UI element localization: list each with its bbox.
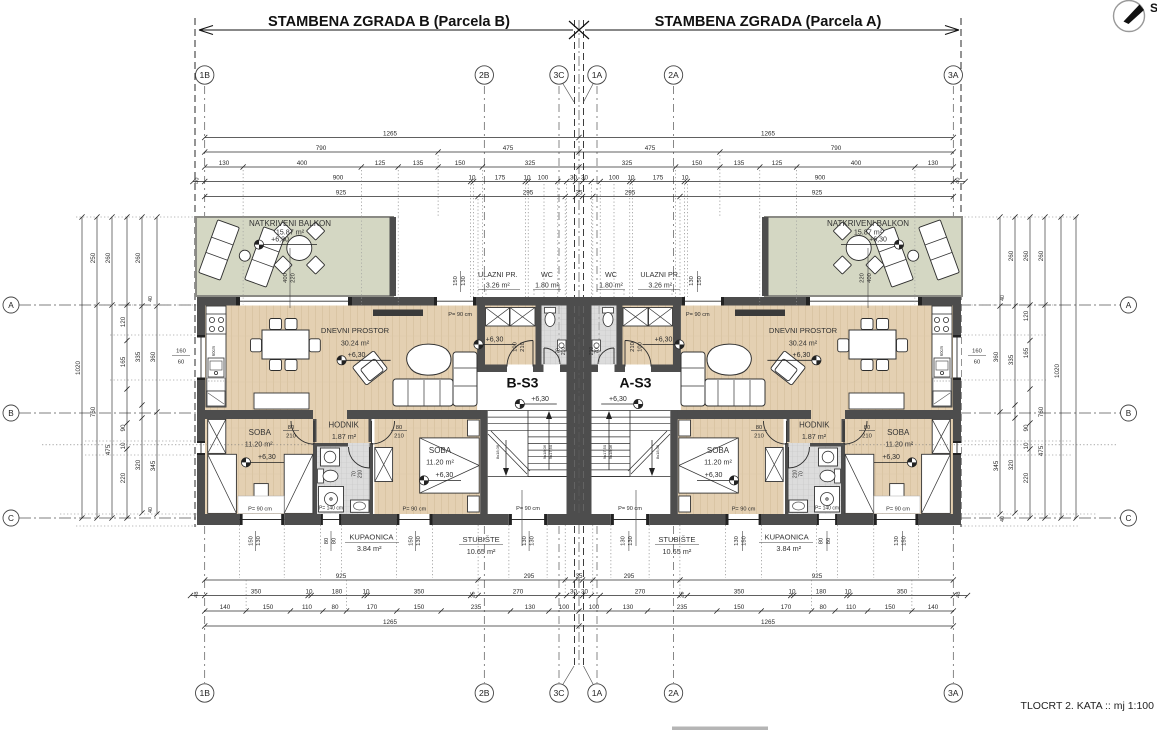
svg-text:130: 130 <box>623 604 634 611</box>
svg-text:325: 325 <box>622 160 633 167</box>
svg-text:P= 140 cm: P= 140 cm <box>815 506 839 512</box>
svg-text:235: 235 <box>471 604 482 611</box>
svg-text:TLOCRT 2. KATA :: mj 1:100: TLOCRT 2. KATA :: mj 1:100 <box>1021 700 1155 712</box>
svg-text:48: 48 <box>194 592 200 598</box>
svg-text:220: 220 <box>120 472 127 483</box>
svg-text:210: 210 <box>793 470 799 479</box>
svg-text:130: 130 <box>416 536 422 546</box>
svg-text:9x17,50: 9x17,50 <box>602 444 607 459</box>
svg-text:STAMBENA ZGRADA B (Parcela B): STAMBENA ZGRADA B (Parcela B) <box>268 14 510 30</box>
svg-text:11.20 m²: 11.20 m² <box>426 458 454 467</box>
svg-text:475: 475 <box>105 444 112 455</box>
svg-text:130: 130 <box>461 276 467 286</box>
svg-text:350: 350 <box>414 588 425 595</box>
svg-text:210: 210 <box>561 347 567 356</box>
svg-text:P= 90 cm: P= 90 cm <box>886 507 910 513</box>
svg-text:10: 10 <box>1023 442 1030 450</box>
svg-text:WC: WC <box>605 270 617 279</box>
svg-text:3.84 m²: 3.84 m² <box>357 544 382 553</box>
svg-text:100: 100 <box>609 174 620 181</box>
svg-text:350: 350 <box>734 588 745 595</box>
svg-text:9x18,06: 9x18,06 <box>608 444 613 459</box>
svg-text:1A: 1A <box>592 70 603 80</box>
svg-text:SOBA: SOBA <box>707 446 730 455</box>
svg-text:DNEVNI PROSTOR: DNEVNI PROSTOR <box>769 326 838 335</box>
svg-text:30.24 m²: 30.24 m² <box>341 338 370 347</box>
svg-text:150: 150 <box>414 604 425 611</box>
svg-text:B: B <box>1126 409 1132 418</box>
svg-text:130: 130 <box>628 536 634 546</box>
svg-text:1A: 1A <box>592 688 603 698</box>
svg-text:1020: 1020 <box>1054 364 1061 379</box>
svg-text:900: 900 <box>333 174 344 181</box>
svg-text:S: S <box>1150 1 1157 15</box>
svg-text:SOBA: SOBA <box>249 428 272 437</box>
svg-text:10: 10 <box>120 442 127 450</box>
svg-text:150: 150 <box>885 604 896 611</box>
svg-text:1020: 1020 <box>75 361 82 376</box>
svg-text:150: 150 <box>453 276 459 286</box>
svg-text:130: 130 <box>928 160 939 167</box>
svg-text:30: 30 <box>581 174 589 181</box>
svg-text:+6,30: +6,30 <box>531 396 549 403</box>
svg-text:SOBA: SOBA <box>429 446 452 455</box>
svg-text:80: 80 <box>324 538 330 544</box>
svg-text:80: 80 <box>288 425 294 431</box>
svg-text:80: 80 <box>818 538 824 544</box>
svg-text:160: 160 <box>176 349 186 355</box>
svg-text:40: 40 <box>956 178 962 184</box>
svg-text:270: 270 <box>635 588 646 595</box>
svg-text:A: A <box>1126 301 1132 310</box>
svg-text:140: 140 <box>928 604 939 611</box>
svg-text:120: 120 <box>1023 310 1030 321</box>
svg-text:135: 135 <box>413 160 424 167</box>
svg-text:790: 790 <box>831 145 842 152</box>
svg-text:130: 130 <box>219 160 230 167</box>
svg-text:335: 335 <box>1008 354 1015 365</box>
svg-text:100: 100 <box>559 604 570 611</box>
svg-text:15.87 m²: 15.87 m² <box>854 228 883 237</box>
svg-text:320: 320 <box>1008 459 1015 470</box>
svg-text:1.87 m²: 1.87 m² <box>332 432 357 441</box>
svg-text:35: 35 <box>575 189 583 196</box>
svg-text:125: 125 <box>375 160 386 167</box>
svg-text:10: 10 <box>681 174 689 181</box>
svg-text:210: 210 <box>286 434 296 440</box>
svg-text:40: 40 <box>148 296 154 302</box>
svg-text:130: 130 <box>525 604 536 611</box>
svg-text:130: 130 <box>522 536 528 546</box>
svg-text:295: 295 <box>624 573 635 580</box>
svg-text:10: 10 <box>468 174 476 181</box>
svg-text:100: 100 <box>638 342 644 352</box>
svg-text:+6,30: +6,30 <box>486 336 504 343</box>
svg-text:175: 175 <box>495 174 506 181</box>
svg-text:180: 180 <box>816 588 827 595</box>
svg-text:165: 165 <box>1023 347 1030 358</box>
svg-text:1.80 m²: 1.80 m² <box>535 282 559 289</box>
svg-text:9x17,50: 9x17,50 <box>548 444 553 459</box>
svg-text:+6,30: +6,30 <box>348 352 366 359</box>
svg-text:925: 925 <box>812 189 823 196</box>
svg-text:+6,30: +6,30 <box>793 352 811 359</box>
svg-text:1265: 1265 <box>383 619 398 626</box>
svg-text:220: 220 <box>291 273 297 283</box>
svg-text:260: 260 <box>105 252 112 263</box>
svg-text:A-S3: A-S3 <box>620 375 652 391</box>
svg-text:1265: 1265 <box>383 130 398 137</box>
svg-text:130: 130 <box>530 536 536 546</box>
svg-text:170: 170 <box>367 604 378 611</box>
svg-text:345: 345 <box>993 460 1000 471</box>
svg-text:35: 35 <box>575 573 583 580</box>
svg-text:+6,30: +6,30 <box>271 236 289 243</box>
svg-text:80: 80 <box>826 538 832 544</box>
svg-text:+6,30: +6,30 <box>655 336 673 343</box>
svg-text:100: 100 <box>513 342 519 352</box>
svg-text:25: 25 <box>471 592 477 598</box>
svg-text:11.20 m²: 11.20 m² <box>245 440 273 449</box>
svg-text:80: 80 <box>332 538 338 544</box>
svg-text:90: 90 <box>1023 424 1030 432</box>
svg-text:40: 40 <box>1000 295 1006 301</box>
svg-text:WC: WC <box>541 270 553 279</box>
svg-text:100: 100 <box>589 604 600 611</box>
svg-text:210: 210 <box>862 434 872 440</box>
svg-text:30.24 m²: 30.24 m² <box>789 338 818 347</box>
svg-text:STUBIŠTE: STUBIŠTE <box>463 535 500 544</box>
svg-text:1265: 1265 <box>761 619 776 626</box>
svg-text:15.87 m²: 15.87 m² <box>276 228 305 237</box>
svg-text:P= 90 cm: P= 90 cm <box>403 507 427 513</box>
svg-text:3A: 3A <box>948 70 959 80</box>
svg-text:10: 10 <box>523 174 531 181</box>
svg-text:140: 140 <box>220 604 231 611</box>
svg-text:475: 475 <box>1038 445 1045 456</box>
svg-text:175: 175 <box>653 174 664 181</box>
svg-text:260: 260 <box>135 252 142 263</box>
svg-text:2A: 2A <box>668 688 679 698</box>
svg-text:760: 760 <box>1038 406 1045 417</box>
svg-text:P= 90 cm: P= 90 cm <box>732 507 756 513</box>
svg-text:260: 260 <box>1008 250 1015 261</box>
svg-text:350: 350 <box>897 588 908 595</box>
svg-text:B-S3: B-S3 <box>507 375 539 391</box>
svg-text:KUPAONICA: KUPAONICA <box>765 533 810 542</box>
svg-text:8x18,06: 8x18,06 <box>495 444 500 459</box>
svg-text:3.84 m²: 3.84 m² <box>776 544 801 553</box>
svg-text:30: 30 <box>570 588 578 595</box>
svg-text:2A: 2A <box>668 70 679 80</box>
svg-text:10: 10 <box>627 174 635 181</box>
svg-text:170: 170 <box>781 604 792 611</box>
svg-text:10: 10 <box>844 588 852 595</box>
svg-text:3C: 3C <box>554 70 565 80</box>
svg-text:70: 70 <box>595 348 601 354</box>
svg-text:1B: 1B <box>199 688 210 698</box>
svg-text:220: 220 <box>859 273 865 283</box>
svg-text:80: 80 <box>396 425 402 431</box>
svg-text:P= 90 cm: P= 90 cm <box>516 506 540 512</box>
svg-text:360: 360 <box>993 351 1000 362</box>
svg-text:130: 130 <box>689 276 695 286</box>
svg-text:3.26 m²: 3.26 m² <box>486 282 510 289</box>
svg-text:130: 130 <box>734 536 740 546</box>
svg-text:B: B <box>8 409 14 418</box>
svg-text:ULAZNI PR.: ULAZNI PR. <box>640 270 680 279</box>
svg-text:10: 10 <box>305 588 313 595</box>
svg-text:160: 160 <box>972 349 982 355</box>
svg-text:2B: 2B <box>479 70 490 80</box>
svg-text:40: 40 <box>1000 516 1006 522</box>
svg-text:235: 235 <box>677 604 688 611</box>
svg-text:2B: 2B <box>479 688 490 698</box>
svg-text:210: 210 <box>754 434 764 440</box>
svg-text:3A: 3A <box>948 688 959 698</box>
svg-text:320: 320 <box>135 459 142 470</box>
svg-text:1.80 m²: 1.80 m² <box>599 282 623 289</box>
svg-text:80: 80 <box>756 425 762 431</box>
svg-text:150: 150 <box>692 160 703 167</box>
svg-text:+6,30: +6,30 <box>258 454 276 461</box>
svg-text:130: 130 <box>894 536 900 546</box>
svg-text:30: 30 <box>581 588 589 595</box>
svg-text:+6,30: +6,30 <box>436 472 454 479</box>
svg-text:475: 475 <box>645 145 656 152</box>
svg-text:360: 360 <box>150 351 157 362</box>
svg-text:345: 345 <box>150 460 157 471</box>
svg-text:210: 210 <box>630 342 636 352</box>
svg-text:P= 90 cm: P= 90 cm <box>686 312 710 318</box>
svg-text:48: 48 <box>956 592 962 598</box>
svg-text:KUPAONICA: KUPAONICA <box>349 533 394 542</box>
svg-text:110: 110 <box>302 604 313 611</box>
svg-text:P= 90 cm: P= 90 cm <box>248 507 272 513</box>
svg-text:1265: 1265 <box>761 130 776 137</box>
svg-text:125: 125 <box>772 160 783 167</box>
svg-text:80: 80 <box>819 604 827 611</box>
svg-text:P= 140 cm: P= 140 cm <box>319 506 343 512</box>
svg-text:210: 210 <box>589 347 595 356</box>
svg-text:260: 260 <box>1038 250 1045 261</box>
svg-text:180: 180 <box>332 588 343 595</box>
svg-text:STUBIŠTE: STUBIŠTE <box>658 535 695 544</box>
svg-text:295: 295 <box>625 189 636 196</box>
svg-text:150: 150 <box>455 160 466 167</box>
svg-text:150: 150 <box>248 536 254 546</box>
svg-text:+6,30: +6,30 <box>705 472 723 479</box>
svg-text:400: 400 <box>283 273 289 283</box>
svg-text:11.20 m²: 11.20 m² <box>885 440 913 449</box>
svg-text:150: 150 <box>697 276 703 286</box>
svg-text:130: 130 <box>620 536 626 546</box>
svg-text:A: A <box>8 301 14 310</box>
svg-text:10: 10 <box>788 588 796 595</box>
svg-text:10.65 m²: 10.65 m² <box>663 547 692 556</box>
svg-text:25: 25 <box>680 592 686 598</box>
svg-text:+6,30: +6,30 <box>869 236 887 243</box>
svg-text:295: 295 <box>524 573 535 580</box>
svg-text:100: 100 <box>538 174 549 181</box>
svg-text:9x18,06: 9x18,06 <box>542 444 547 459</box>
svg-text:900: 900 <box>815 174 826 181</box>
svg-text:350: 350 <box>251 588 262 595</box>
svg-text:925: 925 <box>812 573 823 580</box>
svg-text:70: 70 <box>799 471 805 477</box>
svg-text:270: 270 <box>513 588 524 595</box>
svg-text:60cm: 60cm <box>939 345 944 356</box>
svg-text:925: 925 <box>336 189 347 196</box>
svg-text:40: 40 <box>148 507 154 513</box>
svg-text:+6,30: +6,30 <box>609 396 627 403</box>
svg-text:40: 40 <box>195 178 201 184</box>
svg-text:150: 150 <box>734 604 745 611</box>
svg-text:150: 150 <box>902 536 908 546</box>
svg-text:475: 475 <box>503 145 514 152</box>
svg-text:110: 110 <box>846 604 857 611</box>
svg-text:335: 335 <box>135 351 142 362</box>
svg-text:210: 210 <box>358 470 364 479</box>
svg-text:325: 325 <box>525 160 536 167</box>
svg-text:3.26 m²: 3.26 m² <box>648 282 672 289</box>
svg-text:90: 90 <box>120 424 127 432</box>
svg-text:STAMBENA ZGRADA (Parcela A): STAMBENA ZGRADA (Parcela A) <box>655 14 882 30</box>
svg-text:165: 165 <box>120 356 127 367</box>
svg-text:8x18,06: 8x18,06 <box>655 444 660 459</box>
svg-text:120: 120 <box>120 316 127 327</box>
svg-text:400: 400 <box>297 160 308 167</box>
svg-text:C: C <box>1126 514 1132 523</box>
svg-text:400: 400 <box>851 160 862 167</box>
svg-text:1.87 m²: 1.87 m² <box>802 432 827 441</box>
svg-text:135: 135 <box>734 160 745 167</box>
svg-text:790: 790 <box>316 145 327 152</box>
svg-text:DNEVNI PROSTOR: DNEVNI PROSTOR <box>321 326 390 335</box>
svg-text:210: 210 <box>520 342 526 352</box>
svg-text:60cm: 60cm <box>211 345 216 356</box>
svg-text:10: 10 <box>362 588 370 595</box>
svg-text:30: 30 <box>570 174 578 181</box>
svg-text:80: 80 <box>331 604 339 611</box>
svg-text:C: C <box>8 514 14 523</box>
svg-text:210: 210 <box>394 434 404 440</box>
svg-text:1B: 1B <box>199 70 210 80</box>
svg-text:HODNIK: HODNIK <box>799 421 830 430</box>
svg-text:400: 400 <box>867 273 873 283</box>
svg-text:760: 760 <box>90 406 97 417</box>
svg-text:260: 260 <box>1023 250 1030 261</box>
svg-text:10.65 m²: 10.65 m² <box>467 547 496 556</box>
svg-text:250: 250 <box>90 252 97 263</box>
svg-text:150: 150 <box>408 536 414 546</box>
svg-text:60: 60 <box>974 360 980 366</box>
svg-text:80: 80 <box>864 425 870 431</box>
svg-text:SOBA: SOBA <box>887 428 910 437</box>
svg-text:150: 150 <box>742 536 748 546</box>
svg-text:3C: 3C <box>554 688 565 698</box>
svg-text:60: 60 <box>178 360 184 366</box>
svg-text:+6,30: +6,30 <box>882 454 900 461</box>
svg-text:220: 220 <box>1023 472 1030 483</box>
svg-text:150: 150 <box>263 604 274 611</box>
svg-text:P= 90 cm: P= 90 cm <box>448 312 472 318</box>
svg-text:925: 925 <box>336 573 347 580</box>
svg-text:130: 130 <box>256 536 262 546</box>
svg-text:P= 90 cm: P= 90 cm <box>618 506 642 512</box>
svg-text:ULAZNI PR.: ULAZNI PR. <box>478 270 518 279</box>
svg-text:11.20 m²: 11.20 m² <box>704 458 732 467</box>
svg-text:HODNIK: HODNIK <box>329 421 360 430</box>
